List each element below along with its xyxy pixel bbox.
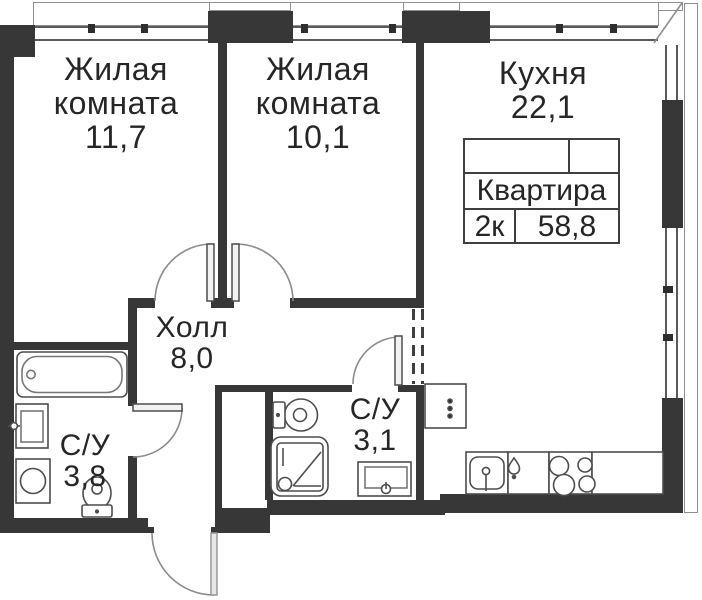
door-leaf [133, 404, 182, 411]
room-area: 8,0 [132, 343, 252, 374]
door-arc [236, 244, 293, 301]
facade-chamfer [654, 3, 682, 43]
room-name: Холл [132, 312, 252, 343]
room-name: С/У [325, 394, 425, 425]
room-area: 22,1 [453, 90, 633, 124]
room-name: Жилая [228, 52, 408, 86]
toilet-icon [273, 399, 318, 431]
dashed-zone-boundary [414, 309, 423, 384]
room-label-living2: Жилая комната 10,1 [228, 52, 408, 154]
room-label-hall: Холл 8,0 [132, 312, 252, 374]
room-area: 3,1 [325, 425, 425, 456]
door-arc [353, 337, 400, 384]
vent-box-icon [425, 384, 466, 428]
bathtub-icon [17, 352, 127, 397]
room-name: С/У [35, 430, 135, 461]
shower-icon [271, 437, 328, 496]
room-label-bath2: С/У 3,1 [325, 394, 425, 456]
washing-machine-icon [358, 462, 411, 496]
info-table-empty-row [465, 140, 618, 174]
entrance-door-leaf [211, 533, 217, 595]
room-name: комната [26, 86, 206, 120]
door-arc [155, 244, 212, 301]
room-name: Жилая [26, 52, 206, 86]
door-arc [152, 533, 214, 595]
room-area: 10,1 [228, 120, 408, 154]
room-label-bath1: С/У 3,8 [35, 430, 135, 492]
door-arc [133, 408, 182, 457]
door-leaf [395, 336, 402, 385]
room-name: комната [228, 86, 408, 120]
room-area: 3,8 [35, 461, 135, 492]
room-label-living1: Жилая комната 11,7 [26, 52, 206, 154]
apartment-info-table: Квартира 2к 58,8 [463, 138, 620, 244]
door-leaf [232, 244, 239, 301]
apartment-total-area: 58,8 [516, 210, 618, 244]
room-label-kitchen: Кухня 22,1 [453, 56, 633, 124]
floor-plan: Жилая комната 11,7 Жилая комната 10,1 Ку… [0, 0, 702, 600]
apartment-type: 2к [465, 210, 516, 244]
apartment-title: Квартира [465, 174, 618, 210]
table-divider [568, 140, 570, 172]
kitchen-sink-icon [470, 457, 504, 491]
room-area: 11,7 [26, 120, 206, 154]
door-leaf [207, 244, 214, 301]
room-name: Кухня [453, 56, 633, 90]
